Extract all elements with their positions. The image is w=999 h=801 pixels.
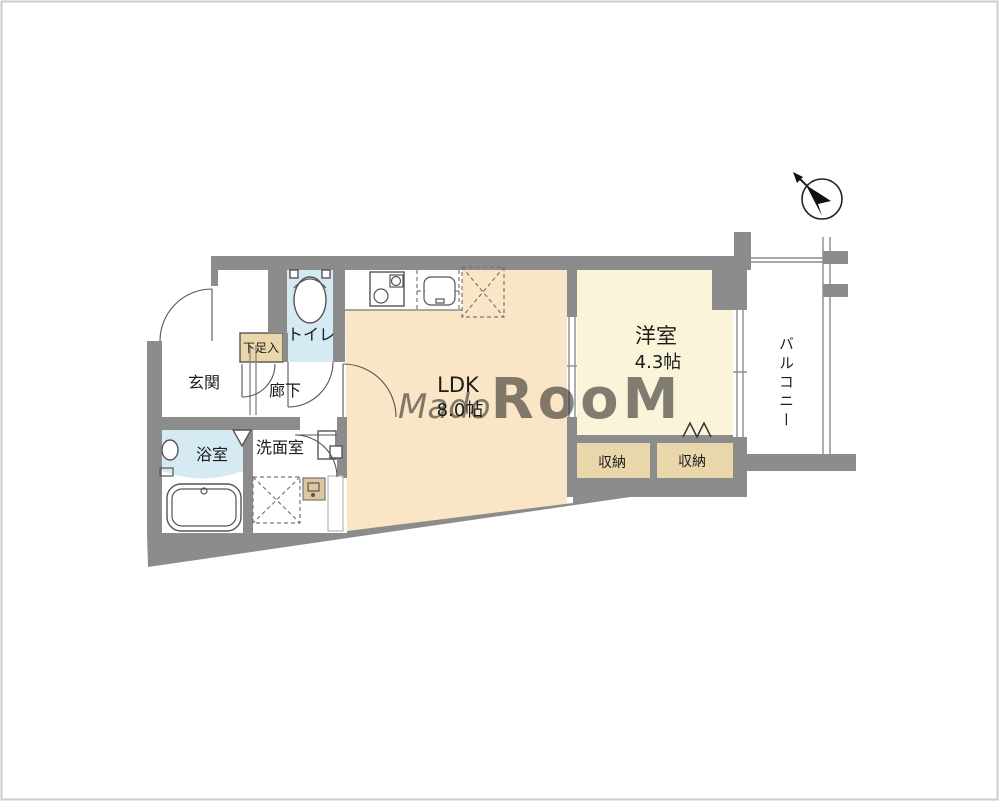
watermark-suffix: RooM (491, 367, 683, 432)
bath-sink-icon (162, 440, 178, 460)
wall-segment (712, 268, 747, 310)
wall-segment (211, 256, 218, 286)
front-door-arc (160, 289, 212, 341)
label-storage-right: 収納 (678, 454, 706, 470)
label-storage-left: 収納 (598, 455, 626, 471)
window-opening (733, 310, 747, 437)
wall-segment (147, 341, 162, 533)
balcony-wall-stub (823, 251, 848, 264)
label-entrance: 玄関 (188, 373, 220, 392)
label-balcony: バルコニー (777, 336, 795, 431)
wall-segment (147, 417, 300, 430)
wall-segment (577, 435, 733, 443)
floor-plan-page: MadoRooM 玄関 下足入 トイレ 廊下 浴室 洗面室 LDK 8.0帖 洋… (0, 0, 999, 801)
label-washroom: 洗面室 (256, 438, 304, 457)
wall-segment (650, 443, 657, 478)
wall-segment (333, 265, 345, 362)
toilet-icon (322, 270, 330, 278)
pipe-space (328, 476, 343, 531)
bathtub-icon (167, 484, 241, 531)
label-western-room-size: 4.3帖 (635, 352, 682, 373)
wall-segment (734, 232, 751, 270)
label-western-room: 洋室 (635, 324, 677, 348)
label-shoe-box: 下足入 (243, 341, 279, 355)
water-heater-icon (311, 493, 315, 497)
balcony-wall-stub (823, 284, 848, 297)
label-hallway: 廊下 (269, 381, 301, 400)
floor-plan: MadoRooM 玄関 下足入 トイレ 廊下 浴室 洗面室 LDK 8.0帖 洋… (0, 0, 999, 801)
label-ldk-size: 8.0帖 (437, 400, 484, 421)
north-arrow-icon (793, 172, 842, 219)
label-bathroom: 浴室 (196, 445, 228, 464)
balcony-bottom-wall (742, 454, 856, 471)
label-toilet: トイレ (287, 325, 335, 344)
wall-segment (268, 265, 287, 333)
label-ldk: LDK (437, 373, 480, 397)
wall-segment (213, 256, 747, 270)
toilet-icon (290, 270, 298, 278)
wall-segment (243, 428, 253, 533)
wall-segment (567, 256, 577, 317)
